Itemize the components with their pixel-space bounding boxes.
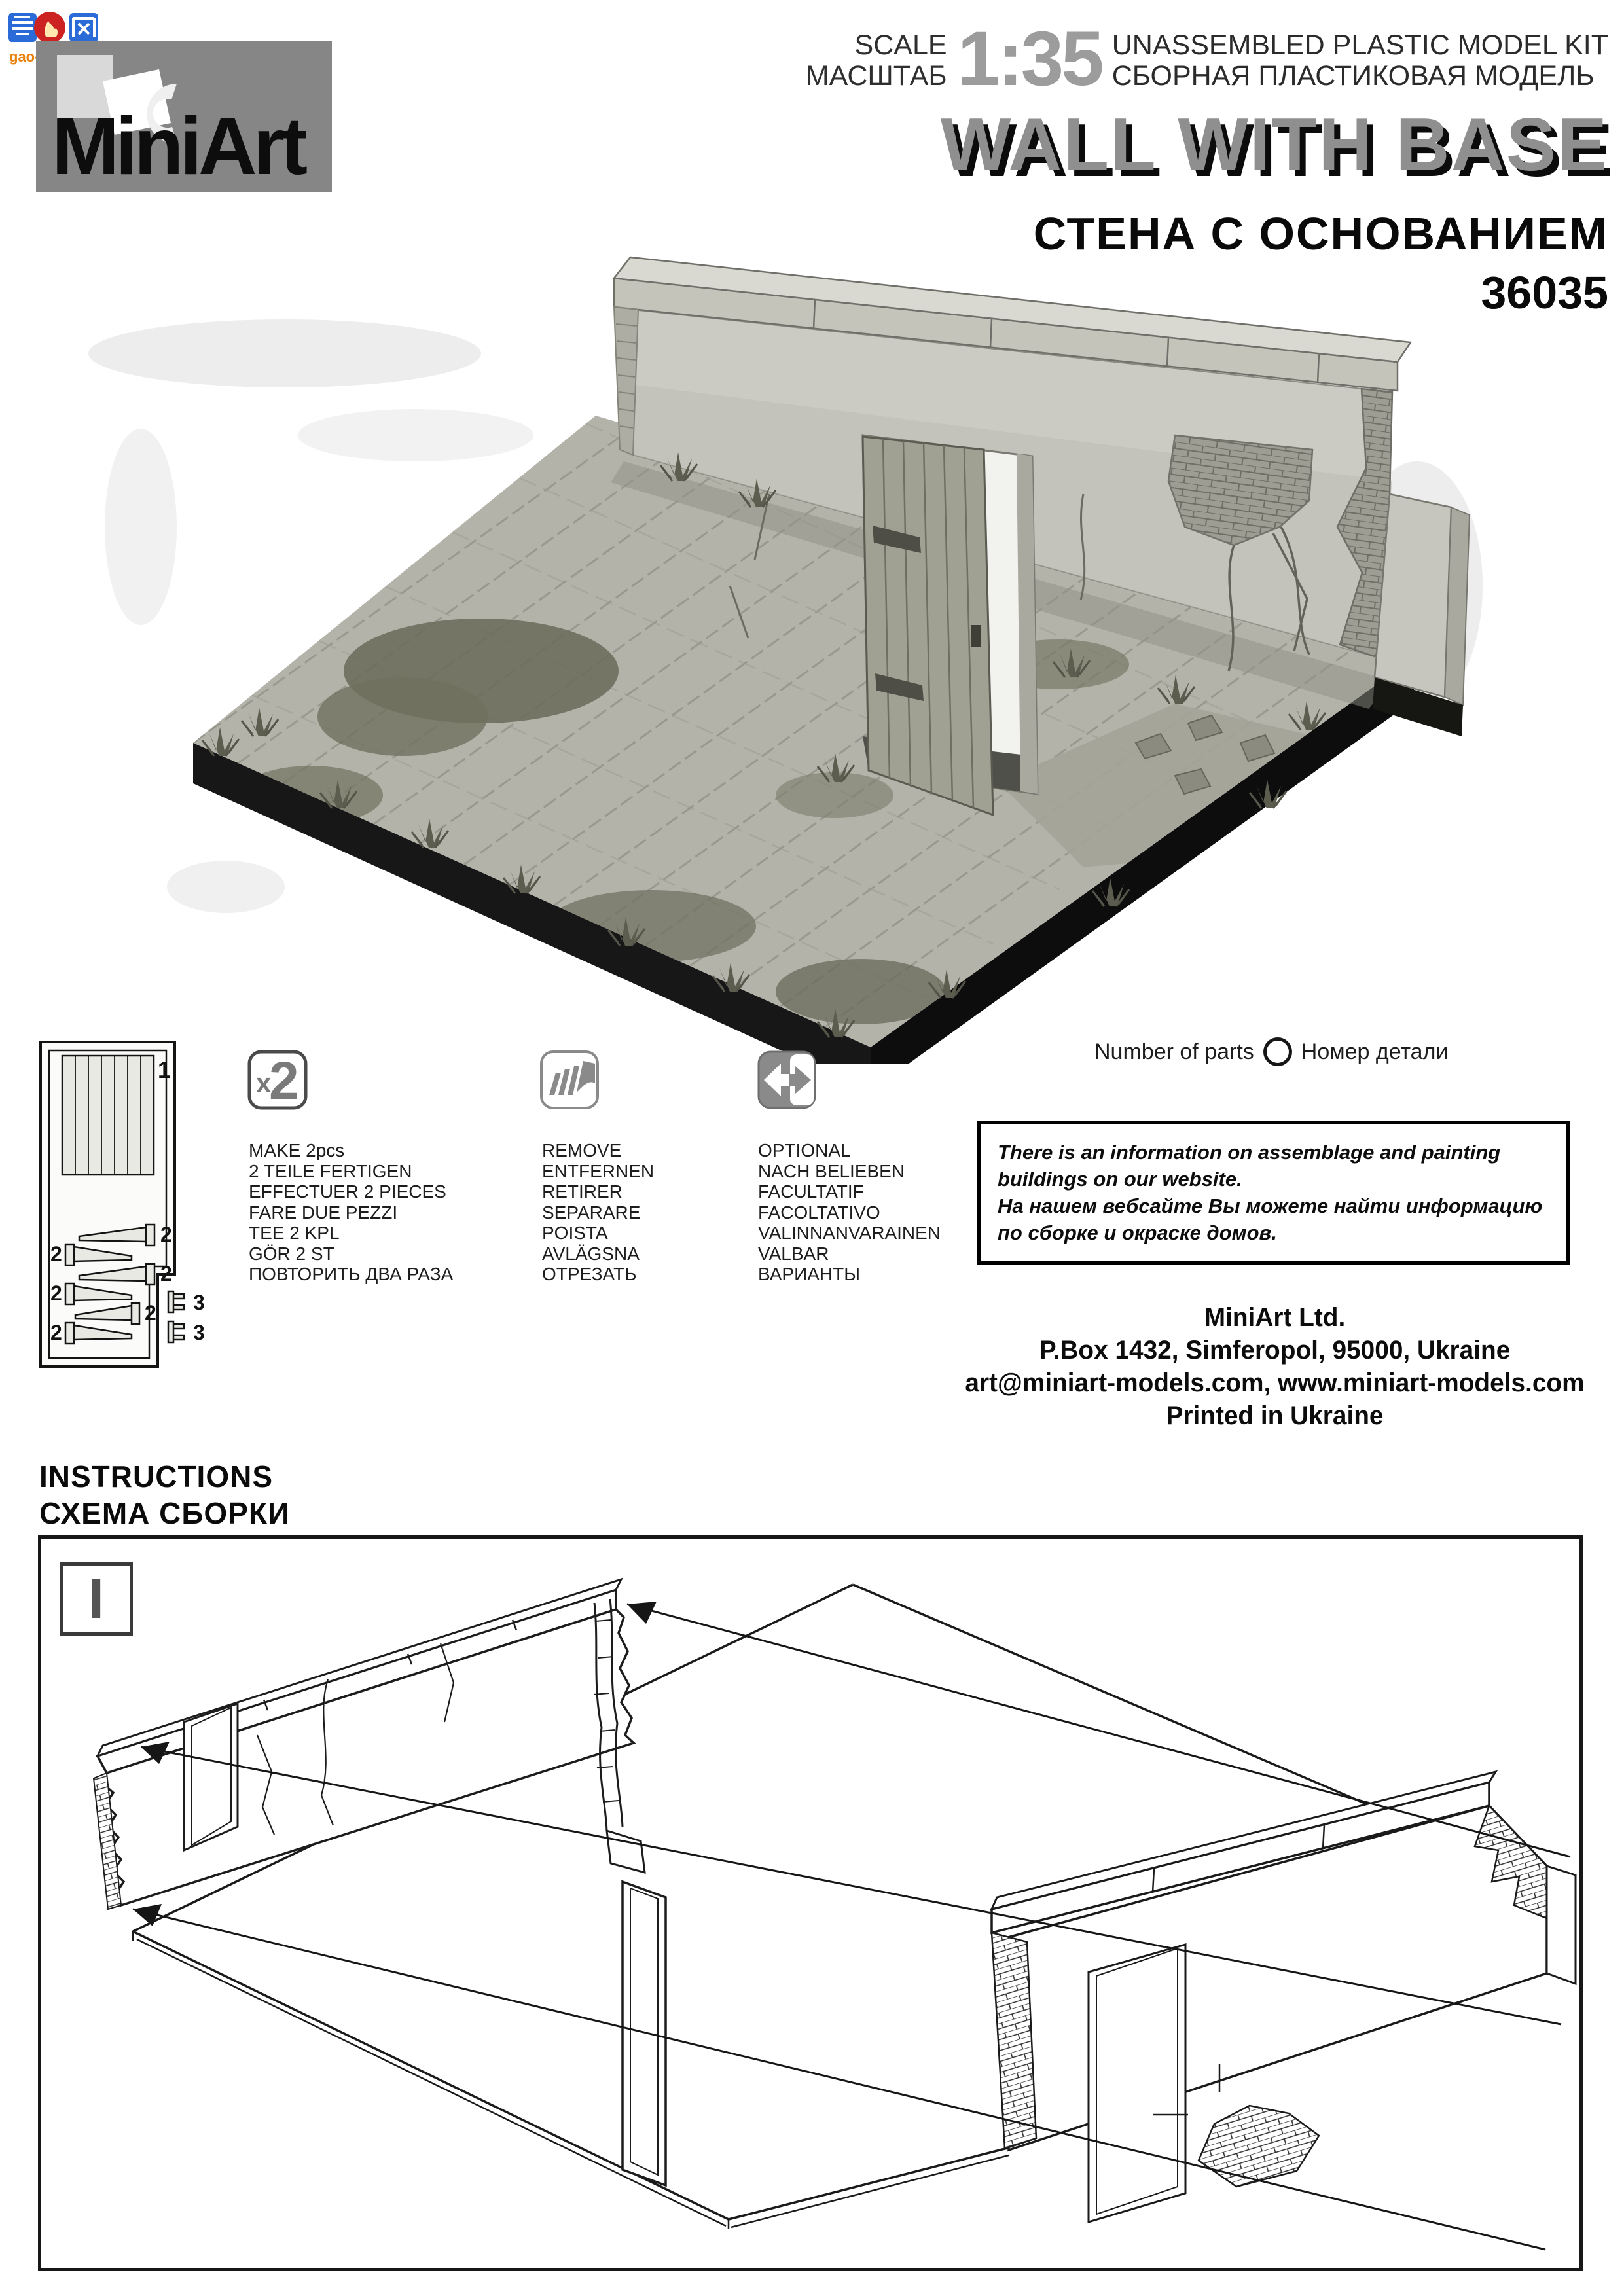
diagram-wall-part xyxy=(94,1579,666,2185)
number-of-parts-en: Number of parts xyxy=(1094,1039,1254,1065)
website-note-box: There is an information on assemblage an… xyxy=(977,1121,1570,1265)
make-x2-icon: x 2 xyxy=(247,1049,308,1114)
scale-value: 1:35 xyxy=(958,26,1102,92)
scale-labels: SCALE МАСШТАБ xyxy=(806,26,947,92)
instruction-sheet-page: gao-shou.com MiniArt SCALE МАСШТАБ 1:35 … xyxy=(0,0,1624,2296)
part-label-2f: 2 xyxy=(50,1321,62,1344)
product-photo-graphic xyxy=(62,219,1509,1064)
make-line-fr: EFFECTUER 2 PIECES xyxy=(249,1181,484,1202)
instructions-heading-ru: СХЕМА СБОРКИ xyxy=(39,1495,290,1532)
part-label-3a: 3 xyxy=(193,1291,205,1314)
remove-sprue-icon xyxy=(539,1049,600,1114)
sprue-part-door: 1 xyxy=(62,1056,171,1175)
optional-line-de: NACH BELIEBEN xyxy=(758,1161,1007,1182)
remove-line-fr: RETIRER xyxy=(542,1181,751,1202)
company-address: MiniArt Ltd. P.Box 1432, Simferopol, 950… xyxy=(940,1301,1610,1432)
number-of-parts-legend: Number of parts Номер детали xyxy=(1094,1037,1448,1066)
part-label-2d: 2 xyxy=(50,1282,62,1305)
photo-door-leaf xyxy=(863,437,993,815)
make-line-ru: ПОВТОРИТЬ ДВА РАЗА xyxy=(249,1264,484,1285)
scale-row: SCALE МАСШТАБ 1:35 UNASSEMBLED PLASTIC M… xyxy=(784,26,1608,92)
scale-label-en: SCALE xyxy=(806,30,947,61)
number-of-parts-ru: Номер детали xyxy=(1301,1039,1449,1065)
company-printed: Printed in Ukraine xyxy=(940,1399,1610,1432)
optional-column-text: OPTIONAL NACH BELIEBEN FACULTATIF FACOLT… xyxy=(758,1140,1007,1285)
optional-line-fi: VALINNANVARAINEN xyxy=(758,1223,1007,1244)
scale-label-ru: МАСШТАБ xyxy=(806,61,947,92)
remove-line-sv: AVLÄGSNA xyxy=(542,1244,751,1265)
product-photo xyxy=(62,219,1509,1067)
make-line-sv: GÖR 2 ST xyxy=(249,1244,484,1265)
make-line-de: 2 TEILE FERTIGEN xyxy=(249,1161,484,1182)
part-label-3b: 3 xyxy=(193,1321,205,1344)
kit-type: UNASSEMBLED PLASTIC MODEL KIT СБОРНАЯ ПЛ… xyxy=(1112,26,1608,92)
make-column-text: MAKE 2pcs 2 TEILE FERTIGEN EFFECTUER 2 P… xyxy=(249,1140,484,1285)
optional-line-fr: FACULTATIF xyxy=(758,1181,1007,1202)
part-label-2e: 2 xyxy=(145,1301,156,1325)
assembly-step-box: I xyxy=(38,1535,1583,2271)
part-label-2a: 2 xyxy=(160,1223,172,1246)
part-number-circle-icon xyxy=(1263,1037,1292,1066)
instructions-heading: INSTRUCTIONS СХЕМА СБОРКИ xyxy=(39,1458,290,1532)
part-label-2b: 2 xyxy=(50,1242,62,1266)
miniart-logo-icon: MiniArt xyxy=(36,41,332,192)
optional-line-it: FACOLTATIVO xyxy=(758,1202,1007,1223)
kit-type-ru: СБОРНАЯ ПЛАСТИКОВАЯ МОДЕЛЬ xyxy=(1112,61,1608,92)
remove-column-text: REMOVE ENTFERNEN RETIRER SEPARARE POISTA… xyxy=(542,1140,751,1285)
arrow-head-3 xyxy=(627,1602,657,1624)
sprue-diagram: 1 2 2 2 2 2 2 xyxy=(36,1037,239,1374)
make-line-en: MAKE 2pcs xyxy=(249,1140,484,1161)
make-line-it: FARE DUE PEZZI xyxy=(249,1202,484,1223)
remove-line-de: ENTFERNEN xyxy=(542,1161,751,1182)
brand-logo: MiniArt xyxy=(36,41,332,196)
company-postal: P.Box 1432, Simferopol, 95000, Ukraine xyxy=(940,1334,1610,1367)
x2-icon-2: 2 xyxy=(269,1051,299,1111)
part-label-1: 1 xyxy=(158,1056,171,1083)
optional-icon xyxy=(756,1049,818,1114)
remove-line-it: SEPARARE xyxy=(542,1202,751,1223)
sprue-graphic: 1 2 2 2 2 2 2 xyxy=(36,1037,239,1371)
optional-line-en: OPTIONAL xyxy=(758,1140,1007,1161)
remove-line-en: REMOVE xyxy=(542,1140,751,1161)
kit-type-en: UNASSEMBLED PLASTIC MODEL KIT xyxy=(1112,30,1608,61)
company-web: art@miniart-models.com, www.miniart-mode… xyxy=(940,1367,1610,1399)
company-name: MiniArt Ltd. xyxy=(940,1301,1610,1334)
page-title: WALL WITH BASE xyxy=(784,102,1608,188)
part-label-2c: 2 xyxy=(160,1262,172,1285)
website-note-line1: There is an information on assemblage an… xyxy=(998,1139,1549,1166)
assembly-diagram-graphic xyxy=(41,1539,1579,2268)
website-note-line3: На нашем вебсайте Вы можете найти информ… xyxy=(998,1193,1549,1219)
photo-door-handle xyxy=(971,625,981,647)
remove-line-fi: POISTA xyxy=(542,1223,751,1244)
website-note-line2: buildings on our website. xyxy=(998,1166,1549,1193)
instructions-heading-en: INSTRUCTIONS xyxy=(39,1458,290,1495)
remove-line-ru: ОТРЕЗАТЬ xyxy=(542,1264,751,1285)
diagram-assembled-wall xyxy=(992,1772,1576,2222)
optional-line-sv: VALBAR xyxy=(758,1244,1007,1265)
website-note-line4: по сборке и окраске домов. xyxy=(998,1219,1549,1246)
sprue-parts-clips xyxy=(168,1291,184,1342)
optional-line-ru: ВАРИАНТЫ xyxy=(758,1264,1007,1285)
logo-text: MiniArt xyxy=(52,101,307,192)
make-line-fi: TEE 2 KPL xyxy=(249,1223,484,1244)
